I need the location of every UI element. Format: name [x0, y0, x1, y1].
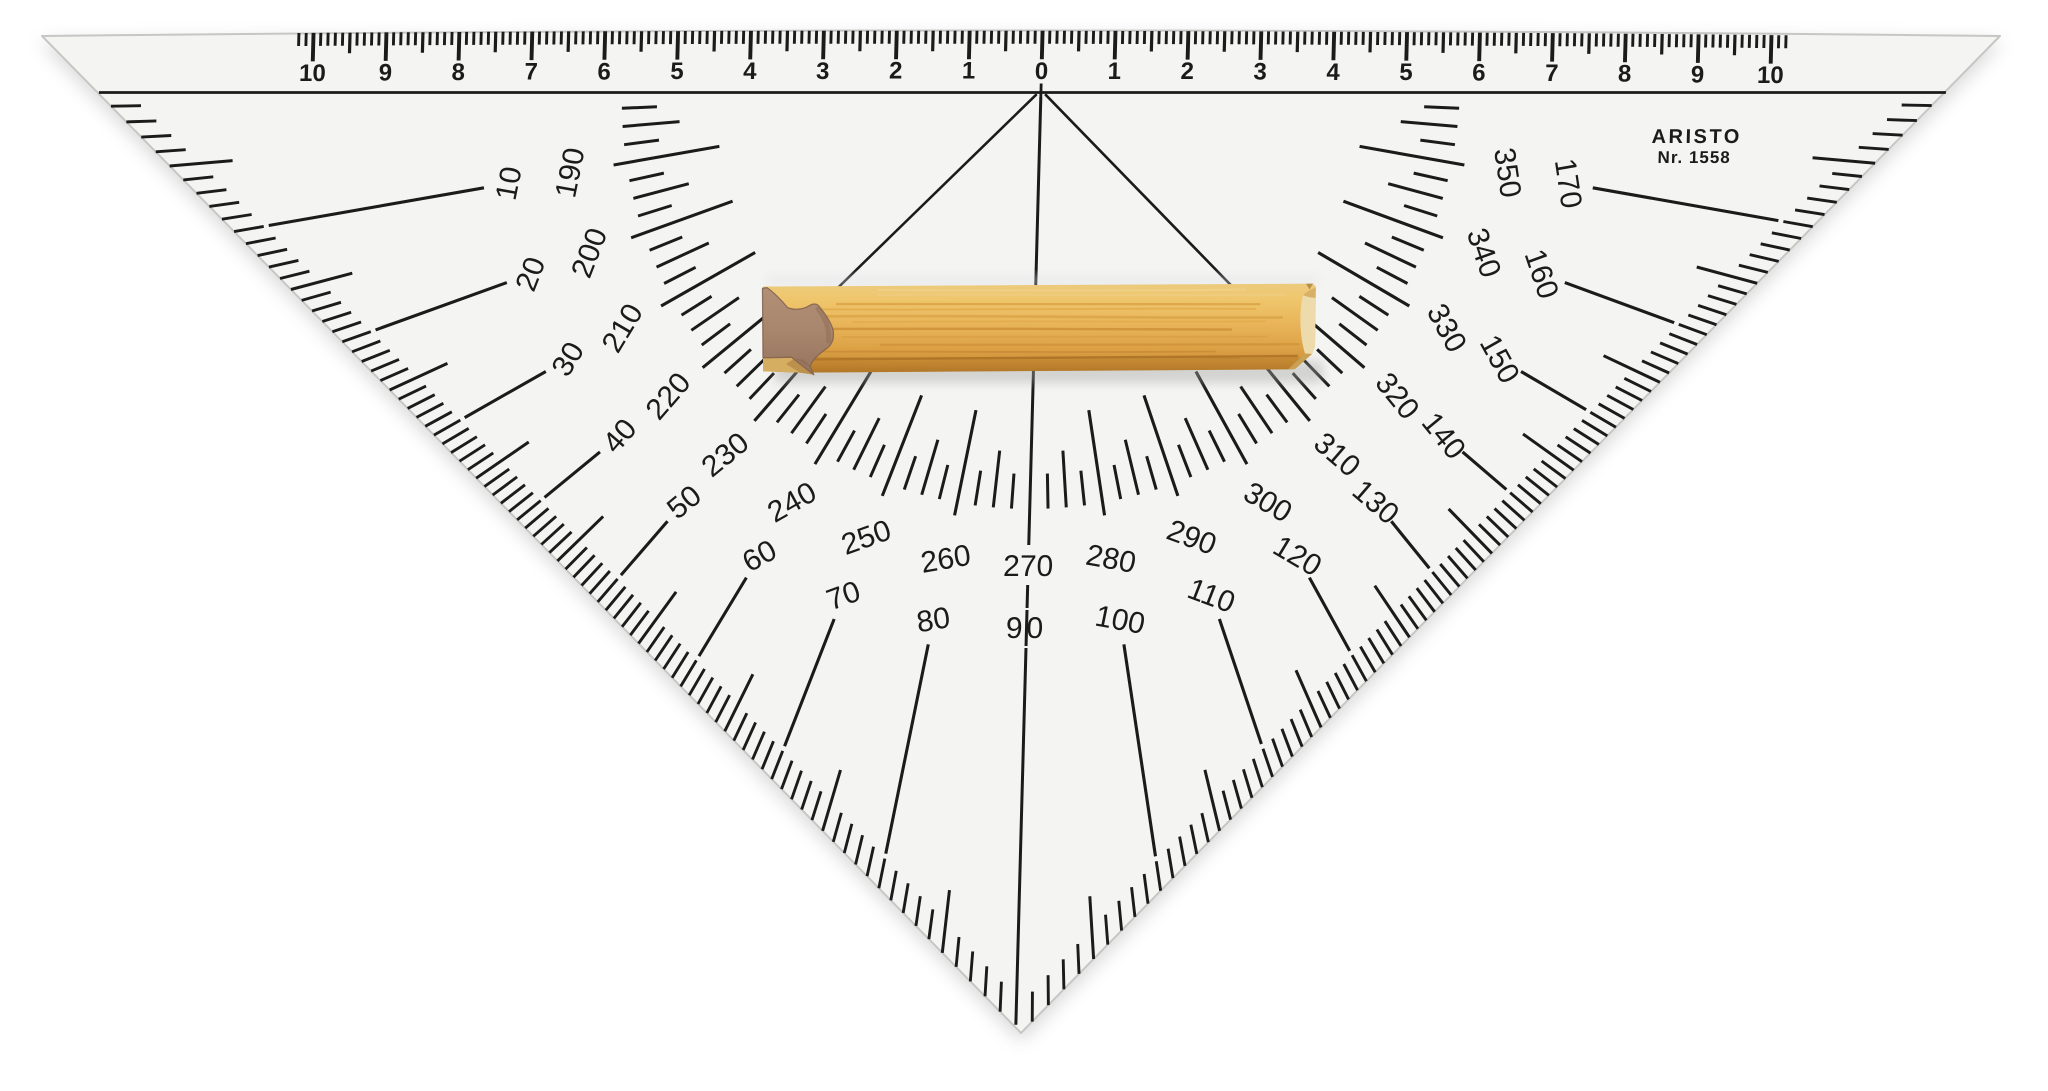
svg-text:6: 6 [1472, 60, 1486, 87]
svg-text:1: 1 [1107, 58, 1121, 85]
svg-text:4: 4 [743, 58, 758, 85]
svg-text:80: 80 [914, 601, 952, 639]
svg-text:10: 10 [490, 164, 529, 203]
svg-text:8: 8 [451, 59, 465, 86]
svg-text:3: 3 [816, 58, 830, 85]
svg-text:9: 9 [378, 59, 392, 86]
svg-text:2: 2 [889, 58, 903, 85]
svg-text:ARISTO: ARISTO [1651, 126, 1742, 148]
svg-text:3: 3 [1253, 58, 1267, 85]
svg-text:10: 10 [299, 60, 326, 87]
svg-text:270: 270 [1003, 550, 1054, 583]
svg-text:9: 9 [1690, 61, 1704, 88]
svg-text:6: 6 [597, 58, 611, 85]
svg-text:7: 7 [524, 59, 538, 86]
svg-text:5: 5 [1399, 59, 1413, 86]
svg-text:7: 7 [1545, 60, 1559, 87]
svg-text:10: 10 [1757, 62, 1784, 89]
svg-text:0: 0 [1034, 58, 1048, 85]
svg-text:5: 5 [670, 58, 684, 85]
svg-text:2: 2 [1180, 58, 1194, 85]
svg-text:1: 1 [962, 58, 976, 85]
svg-text:4: 4 [1326, 59, 1341, 86]
svg-text:8: 8 [1618, 61, 1632, 88]
svg-text:Nr. 1558: Nr. 1558 [1657, 148, 1731, 167]
svg-text:90: 90 [1005, 612, 1047, 645]
